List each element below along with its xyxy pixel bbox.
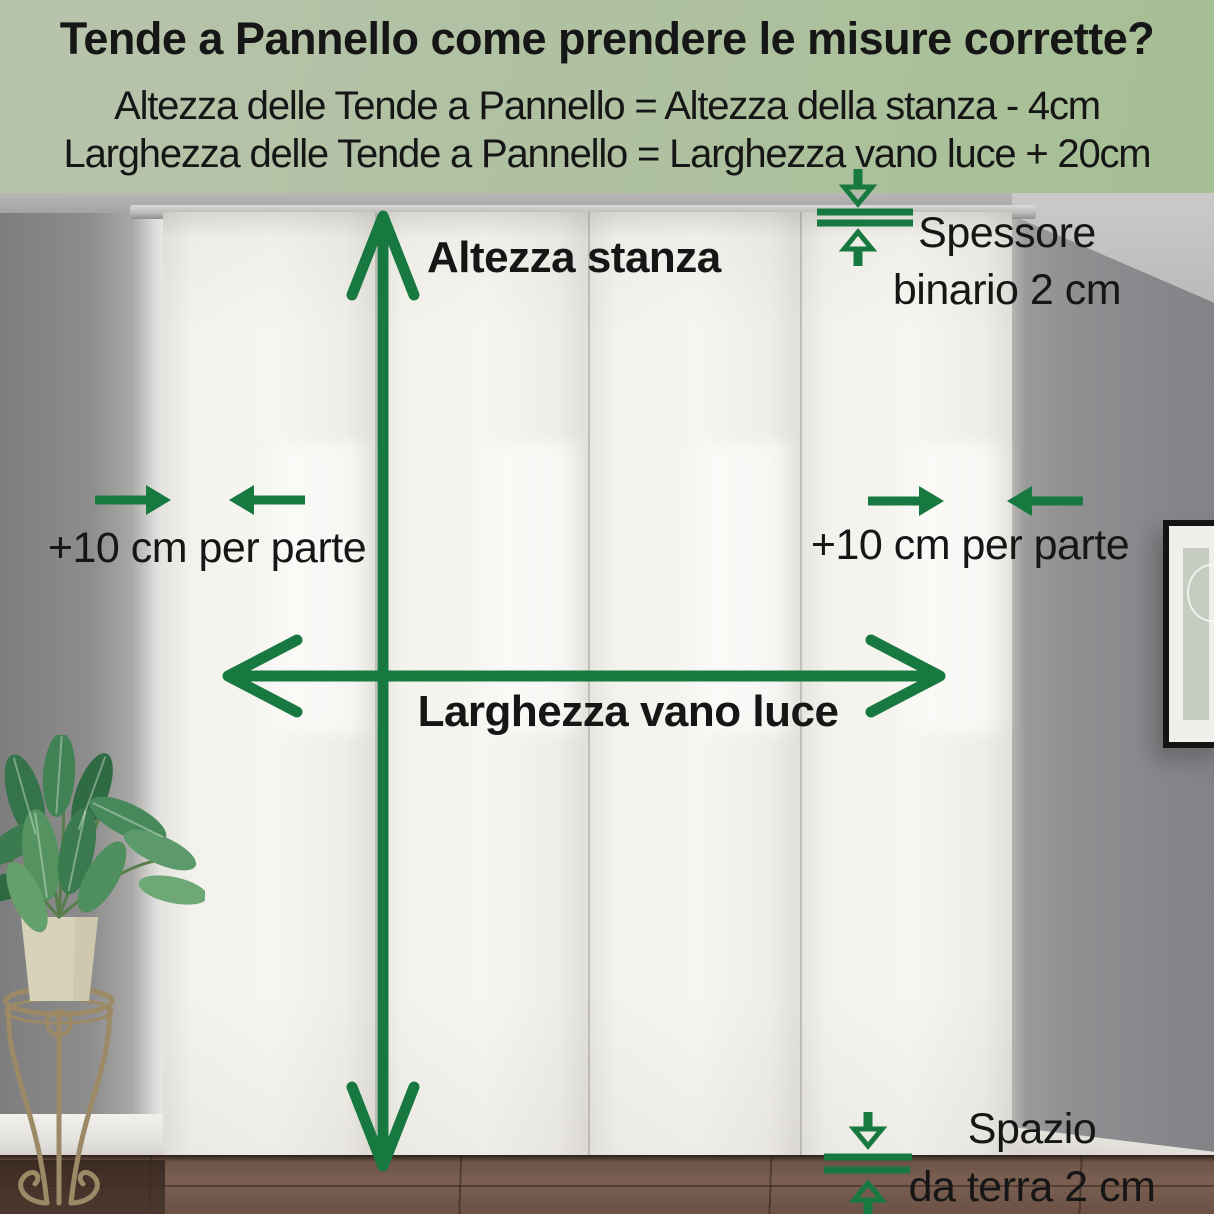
floor-gap-line1: Spazio [909, 1100, 1156, 1158]
picture-art [1183, 548, 1209, 720]
picture-art-circle [1187, 564, 1214, 622]
infographic-panel-curtain-measuring: Tende a Pannello come prendere le misure… [0, 0, 1214, 1214]
page-title: Tende a Pannello come prendere le misure… [0, 13, 1214, 65]
plant-leaves [0, 735, 205, 938]
header-band: Tende a Pannello come prendere le misure… [0, 0, 1214, 193]
panel-curtains [163, 212, 1012, 1158]
side-allowance-right-label: +10 cm per parte [811, 521, 1129, 570]
panel-seam [800, 212, 802, 1158]
panel-seam [375, 212, 377, 1158]
panel-seam [588, 212, 590, 1158]
floor-gap-line2: da terra 2 cm [909, 1158, 1156, 1214]
rail-thickness-line1: Spessore [893, 205, 1121, 262]
potted-plant [0, 735, 205, 1214]
width-formula-text: Larghezza delle Tende a Pannello = Largh… [0, 132, 1214, 177]
room-height-label: Altezza stanza [427, 233, 721, 283]
rail-thickness-line2: binario 2 cm [893, 262, 1121, 319]
rail-thickness-label: Spessore binario 2 cm [893, 205, 1121, 319]
plant-stand [6, 988, 112, 1203]
floor-gap-label: Spazio da terra 2 cm [909, 1100, 1156, 1214]
picture-frame [1163, 520, 1214, 748]
plant-pot [21, 917, 98, 1001]
height-formula-text: Altezza delle Tende a Pannello = Altezza… [0, 84, 1214, 129]
side-allowance-left-label: +10 cm per parte [48, 524, 366, 573]
picture-mat [1169, 526, 1214, 742]
opening-width-label: Larghezza vano luce [418, 687, 839, 737]
